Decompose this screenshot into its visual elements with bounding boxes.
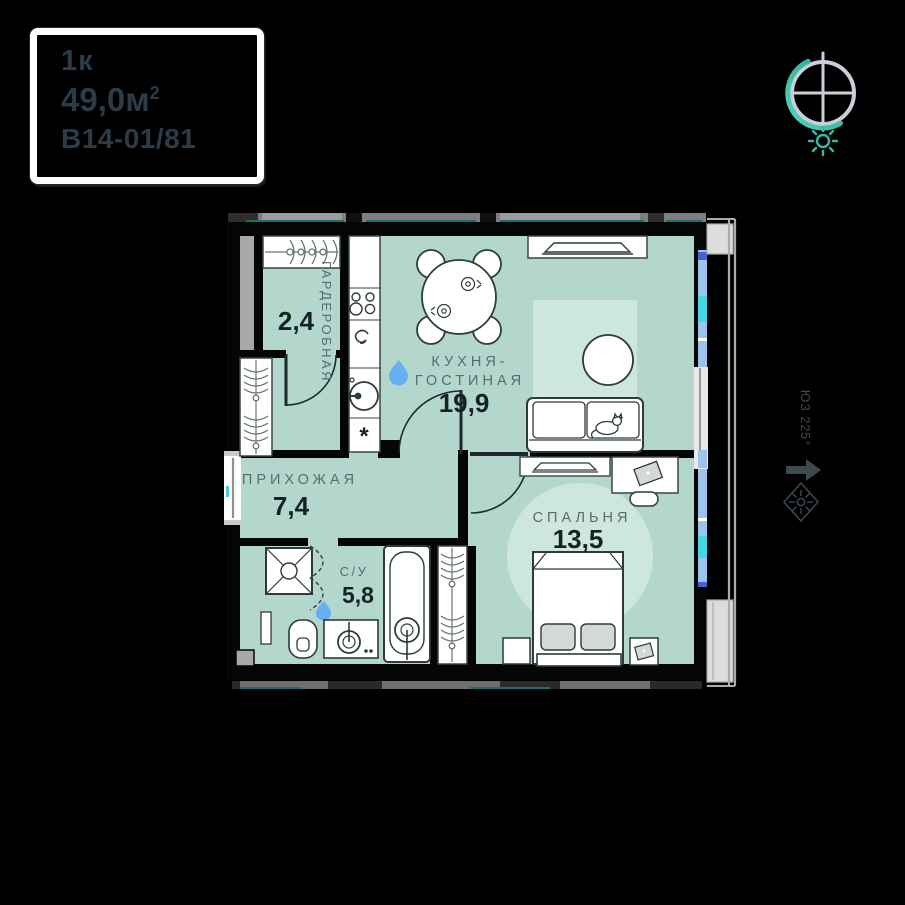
entrance-door [224,451,241,525]
washing-machine-marker: * [359,423,369,450]
hallway-label: ПРИХОЖАЯ [242,472,358,488]
wall-bathroom-top-left [226,538,308,546]
facade-strip-bottom [232,681,702,689]
dining-set [417,250,501,344]
facade-strip-top [228,213,706,223]
kitchen-living-area: 19,9 [439,388,490,418]
wall-wardrobe-bottom-left [240,350,286,358]
bedroom-area: 13,5 [553,524,604,554]
balcony-rail [707,219,735,686]
bedroom-tv-console [520,457,610,476]
sun-icon [784,483,818,521]
nightstand [503,638,530,664]
tv-icon [545,243,630,252]
dining-table [422,260,496,334]
wall-tub-closet [430,546,438,664]
compass-arrow-icon [786,459,821,481]
coffee-table [583,335,633,385]
bed [533,552,623,666]
apartment-plan: ГАРДЕРОБНАЯ 2,4 [224,213,735,689]
wall-bottom [226,664,707,680]
logo-crescent [788,61,841,128]
shaft-lower [236,650,254,666]
azimuth-label: ЮЗ 225° [798,390,812,447]
wall-hall-bedroom [458,450,468,546]
tv-icon [534,463,596,470]
bathtub-icon [384,546,430,662]
hallway-area: 7,4 [273,491,310,521]
bathroom-area: 5,8 [342,582,374,608]
kitchen-living-label-1: КУХНЯ- [431,354,508,370]
wardrobe-area: 2,4 [278,306,315,336]
brand-logo [788,53,854,155]
bathroom-label: С/У [340,564,369,579]
hallway-closet [240,358,272,456]
tv-console [528,236,647,258]
window-glazing-bottom [698,469,707,587]
pillow [541,624,575,650]
wall-bathroom-top-right [338,538,468,546]
sofa [527,398,643,452]
compass: ЮЗ 225° [784,390,821,521]
wall-left-upper [226,222,240,454]
desk-chair [630,492,658,506]
wardrobe-label: ГАРДЕРОБНАЯ [319,261,334,383]
floor-plan-page: 1к 49,0м2 В14-01/81 [0,0,905,905]
wall-closet-bedroom [467,546,476,664]
wall-wardrobe-kitchen [340,222,349,458]
logo-sun-icon [809,127,837,155]
utility-shaft [240,236,254,352]
shower-icon [266,548,312,594]
pillow [581,624,615,650]
floor-plan-svg: ГАРДЕРОБНАЯ 2,4 [0,0,905,905]
wall-top [226,222,707,236]
kitchen-counter: * [349,236,380,452]
wall-living-door-stub [378,440,400,458]
kitchen-living-label-2: ГОСТИНАЯ [415,373,525,389]
wall-wardrobe-bottom-right [336,350,349,358]
service-hatch [261,612,271,644]
nightstand [630,638,658,665]
entrance-accent [226,486,229,497]
toilet-icon [289,620,317,658]
bedroom-closet [438,546,467,664]
bathroom-sink-icon [324,620,378,658]
headboard [537,654,621,666]
